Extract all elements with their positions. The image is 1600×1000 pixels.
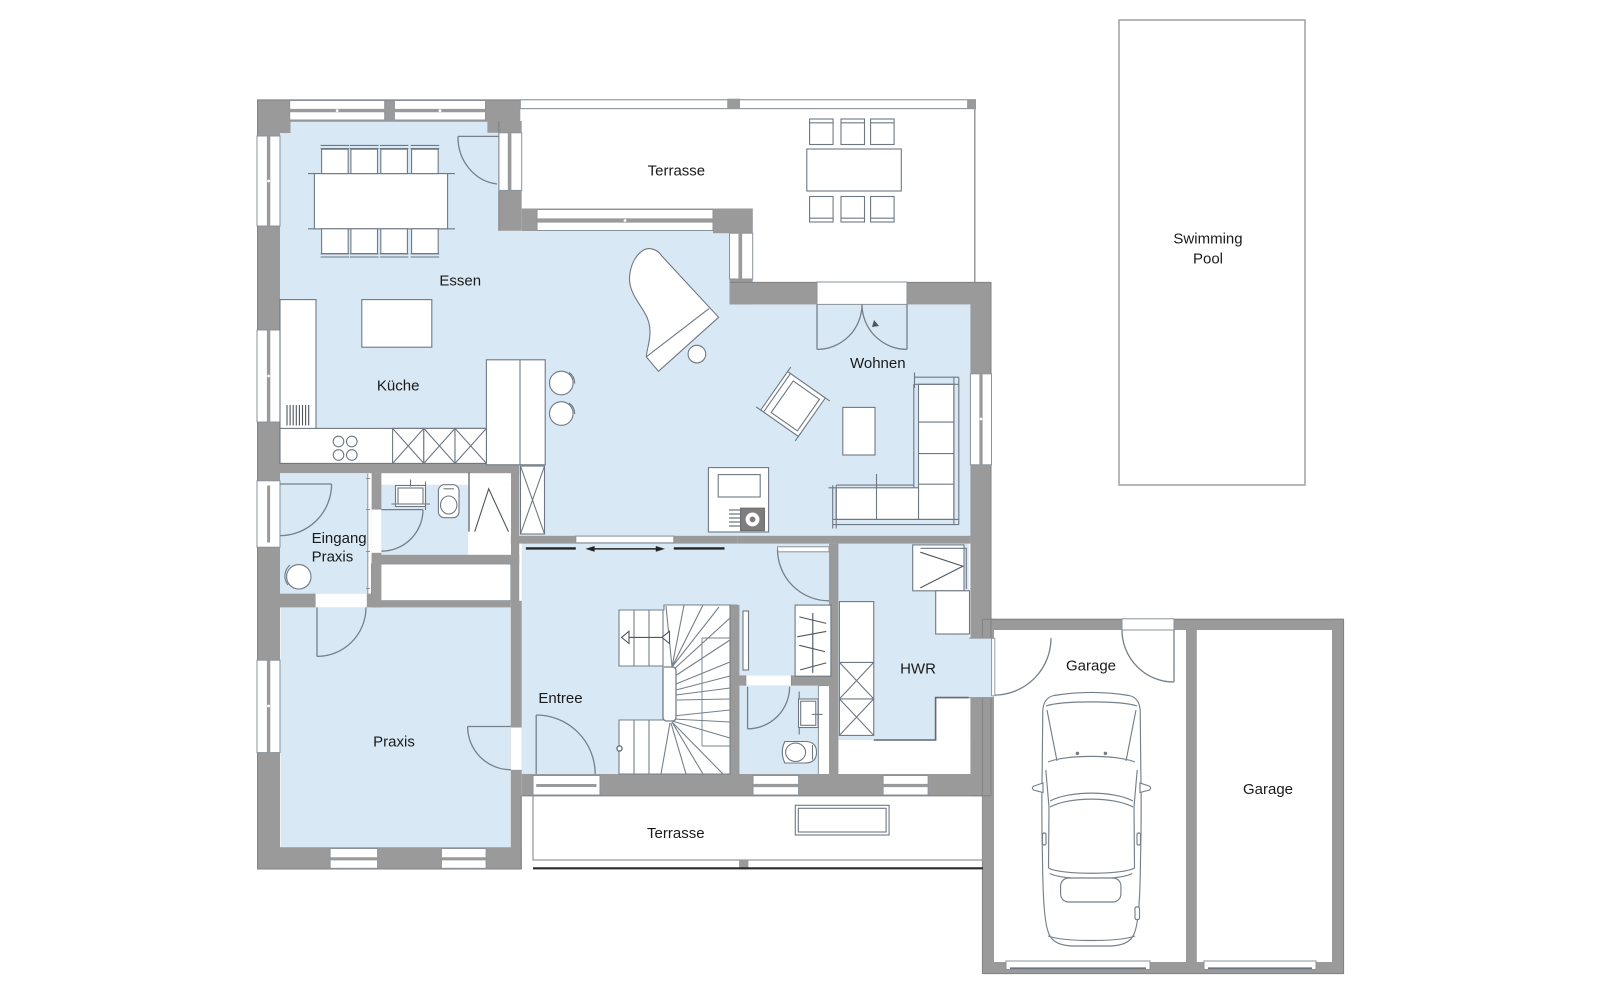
svg-text:Terrasse: Terrasse [648,163,706,180]
svg-text:Essen: Essen [439,273,481,290]
svg-text:HWR: HWR [900,661,936,678]
svg-text:Praxis: Praxis [312,549,354,566]
svg-text:Swimming: Swimming [1173,231,1242,248]
svg-text:Pool: Pool [1193,251,1223,268]
svg-text:Wohnen: Wohnen [850,355,906,372]
svg-text:Entree: Entree [538,690,582,707]
svg-text:Garage: Garage [1243,781,1293,798]
svg-text:Praxis: Praxis [373,734,415,751]
svg-text:Terrasse: Terrasse [647,825,705,842]
svg-text:Garage: Garage [1066,658,1116,675]
svg-text:Küche: Küche [377,378,420,395]
svg-text:Eingang: Eingang [312,530,367,547]
